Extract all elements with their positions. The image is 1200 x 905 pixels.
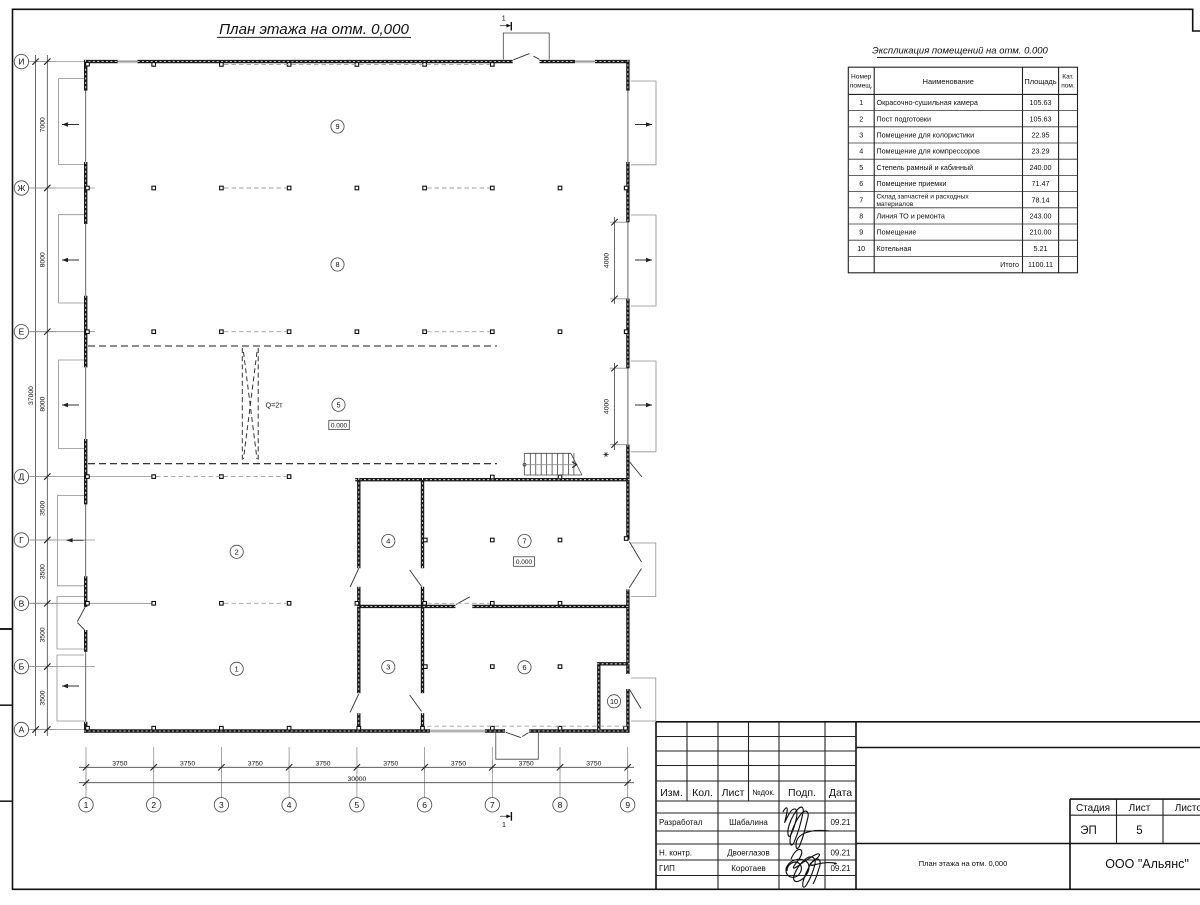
svg-text:6: 6 [522,663,526,672]
svg-text:09.21: 09.21 [830,849,851,858]
svg-text:Д: Д [19,472,25,482]
svg-text:5: 5 [336,401,340,410]
svg-text:10: 10 [610,697,618,706]
svg-text:5: 5 [1136,825,1142,837]
svg-text:3500: 3500 [40,627,47,642]
svg-text:Помещение для компрессоров: Помещение для компрессоров [877,147,980,156]
svg-text:7000: 7000 [40,117,47,132]
svg-text:240.00: 240.00 [1030,163,1052,172]
svg-text:Ж: Ж [17,183,25,193]
svg-text:Шабалина: Шабалина [729,818,768,827]
svg-text:План этажа на отм. 0,000: План этажа на отм. 0,000 [919,859,1008,868]
svg-text:3500: 3500 [40,501,47,516]
svg-text:9: 9 [625,800,630,810]
svg-text:№док.: №док. [752,788,775,797]
svg-text:3: 3 [219,800,224,810]
svg-text:1100.11: 1100.11 [1028,260,1053,269]
svg-text:5: 5 [355,800,360,810]
svg-text:105.63: 105.63 [1030,98,1052,107]
svg-text:Лист: Лист [722,787,745,799]
svg-text:Н. контр.: Н. контр. [659,849,692,858]
svg-text:Помещение для колористики: Помещение для колористики [877,131,975,140]
svg-text:3500: 3500 [40,690,47,705]
svg-text:1: 1 [84,800,89,810]
svg-text:План этажа на отм. 0,000: План этажа на отм. 0,000 [219,21,409,38]
svg-text:Котельная: Котельная [877,244,912,253]
svg-text:Кол.: Кол. [692,787,713,799]
svg-text:В: В [19,598,25,608]
svg-text:Б: Б [19,662,25,672]
svg-text:09.21: 09.21 [830,818,851,827]
svg-text:1: 1 [235,665,239,674]
svg-text:2: 2 [235,548,239,557]
svg-text:Помещение приемки: Помещение приемки [877,179,947,188]
svg-text:2: 2 [151,800,156,810]
svg-text:7: 7 [522,537,526,546]
svg-text:10: 10 [857,244,865,253]
svg-text:1: 1 [859,98,863,107]
svg-text:Q=2т: Q=2т [266,401,284,410]
svg-text:5.21: 5.21 [1034,244,1048,253]
svg-text:помещ.: помещ. [850,83,873,90]
svg-text:5: 5 [859,163,863,172]
svg-text:ГИП: ГИП [659,864,675,873]
svg-text:243.00: 243.00 [1030,212,1052,221]
svg-text:8: 8 [859,212,863,221]
svg-text:Подп.: Подп. [788,787,816,799]
svg-text:4: 4 [859,147,863,156]
svg-text:2: 2 [859,114,863,123]
svg-text:Е: Е [19,327,25,337]
svg-text:Г: Г [19,535,24,545]
svg-text:3500: 3500 [40,564,47,579]
svg-text:7: 7 [490,800,495,810]
svg-text:Окрасочно-сушильная камера: Окрасочно-сушильная камера [877,98,978,107]
svg-text:6: 6 [859,179,863,188]
svg-text:Разработал: Разработал [659,818,703,827]
svg-text:Двоеглазов: Двоеглазов [727,849,770,858]
svg-text:Склад запчастей и расходных: Склад запчастей и расходных [877,193,970,201]
svg-text:Стадия: Стадия [1076,803,1110,814]
svg-text:Номер: Номер [851,74,872,81]
svg-text:3: 3 [859,131,863,140]
svg-text:9: 9 [335,122,339,131]
svg-text:9: 9 [859,228,863,237]
svg-text:материалов: материалов [877,201,914,208]
svg-text:210.00: 210.00 [1030,228,1052,237]
svg-text:0.000: 0.000 [516,559,533,566]
svg-text:Площадь: Площадь [1024,77,1056,86]
svg-text:78.14: 78.14 [1032,195,1050,204]
svg-text:И: И [18,57,24,67]
svg-text:пом.: пом. [1061,83,1075,90]
svg-text:3750: 3750 [451,761,466,768]
svg-text:4: 4 [287,800,292,810]
svg-text:8: 8 [558,800,563,810]
svg-text:А: А [19,725,25,735]
svg-text:30000: 30000 [347,776,366,783]
svg-text:3750: 3750 [180,761,195,768]
svg-text:71.47: 71.47 [1032,179,1050,188]
svg-text:8000: 8000 [40,396,47,411]
svg-text:Лист: Лист [1129,803,1151,814]
svg-text:4000: 4000 [604,253,611,268]
svg-text:7: 7 [859,195,863,204]
svg-text:Листов: Листов [1175,803,1200,814]
svg-text:Пост подготовки: Пост подготовки [877,114,931,123]
svg-text:3750: 3750 [112,761,127,768]
svg-text:Экспликация помещений на отм.: Экспликация помещений на отм. 0.000 [872,46,1048,57]
svg-text:Наименование: Наименование [923,77,974,86]
svg-text:37000: 37000 [28,386,35,405]
svg-text:Дата: Дата [829,787,852,799]
svg-text:4: 4 [386,537,390,546]
svg-text:Коротаев: Коротаев [731,864,766,873]
svg-text:Кат.: Кат. [1062,74,1074,81]
svg-text:Итого: Итого [1000,260,1019,269]
svg-text:0.000: 0.000 [331,422,348,429]
svg-text:3750: 3750 [586,761,601,768]
svg-text:105.63: 105.63 [1030,114,1052,123]
svg-text:3750: 3750 [248,761,263,768]
svg-text:3750: 3750 [383,761,398,768]
svg-text:4000: 4000 [604,399,611,414]
svg-text:Степель рамный и кабинный: Степель рамный и кабинный [877,163,974,172]
svg-text:6: 6 [422,800,427,810]
svg-text:09.21: 09.21 [830,864,851,873]
svg-text:3750: 3750 [519,761,534,768]
svg-text:Помещение: Помещение [877,228,917,237]
svg-text:1: 1 [502,13,506,22]
svg-text:Линия ТО и ремонта: Линия ТО и ремонта [877,212,945,221]
svg-text:8: 8 [335,260,339,269]
svg-text:ООО "Альянс": ООО "Альянс" [1105,857,1189,871]
svg-text:3: 3 [386,663,390,672]
svg-text:23.29: 23.29 [1032,147,1050,156]
svg-text:Изм.: Изм. [660,787,683,799]
svg-text:1: 1 [502,820,506,829]
svg-text:8000: 8000 [40,252,47,267]
svg-text:ЭП: ЭП [1080,825,1097,837]
svg-text:22.95: 22.95 [1032,131,1050,140]
svg-text:3750: 3750 [315,761,330,768]
